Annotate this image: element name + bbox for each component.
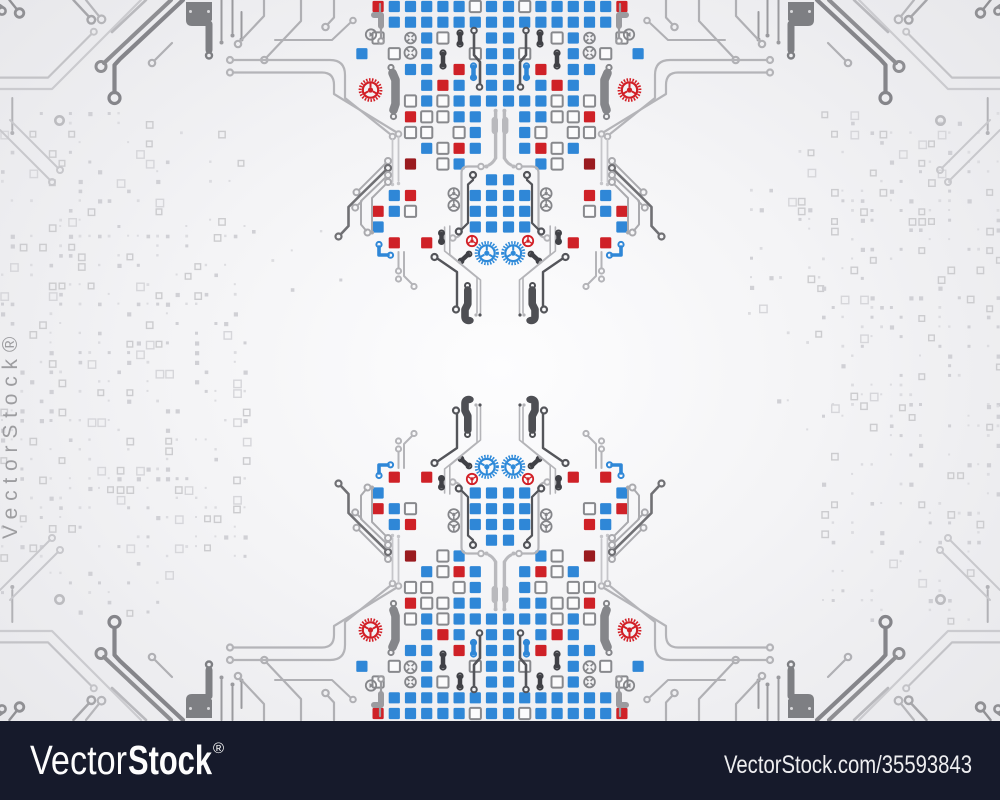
- svg-text:®: ®: [213, 740, 224, 757]
- svg-text:VectorStock.com/35593843: VectorStock.com/35593843: [724, 751, 972, 779]
- svg-text:Vector: Vector: [30, 737, 127, 783]
- svg-text:Stock: Stock: [128, 737, 212, 783]
- svg-text:VectorStock®: VectorStock®: [0, 330, 22, 539]
